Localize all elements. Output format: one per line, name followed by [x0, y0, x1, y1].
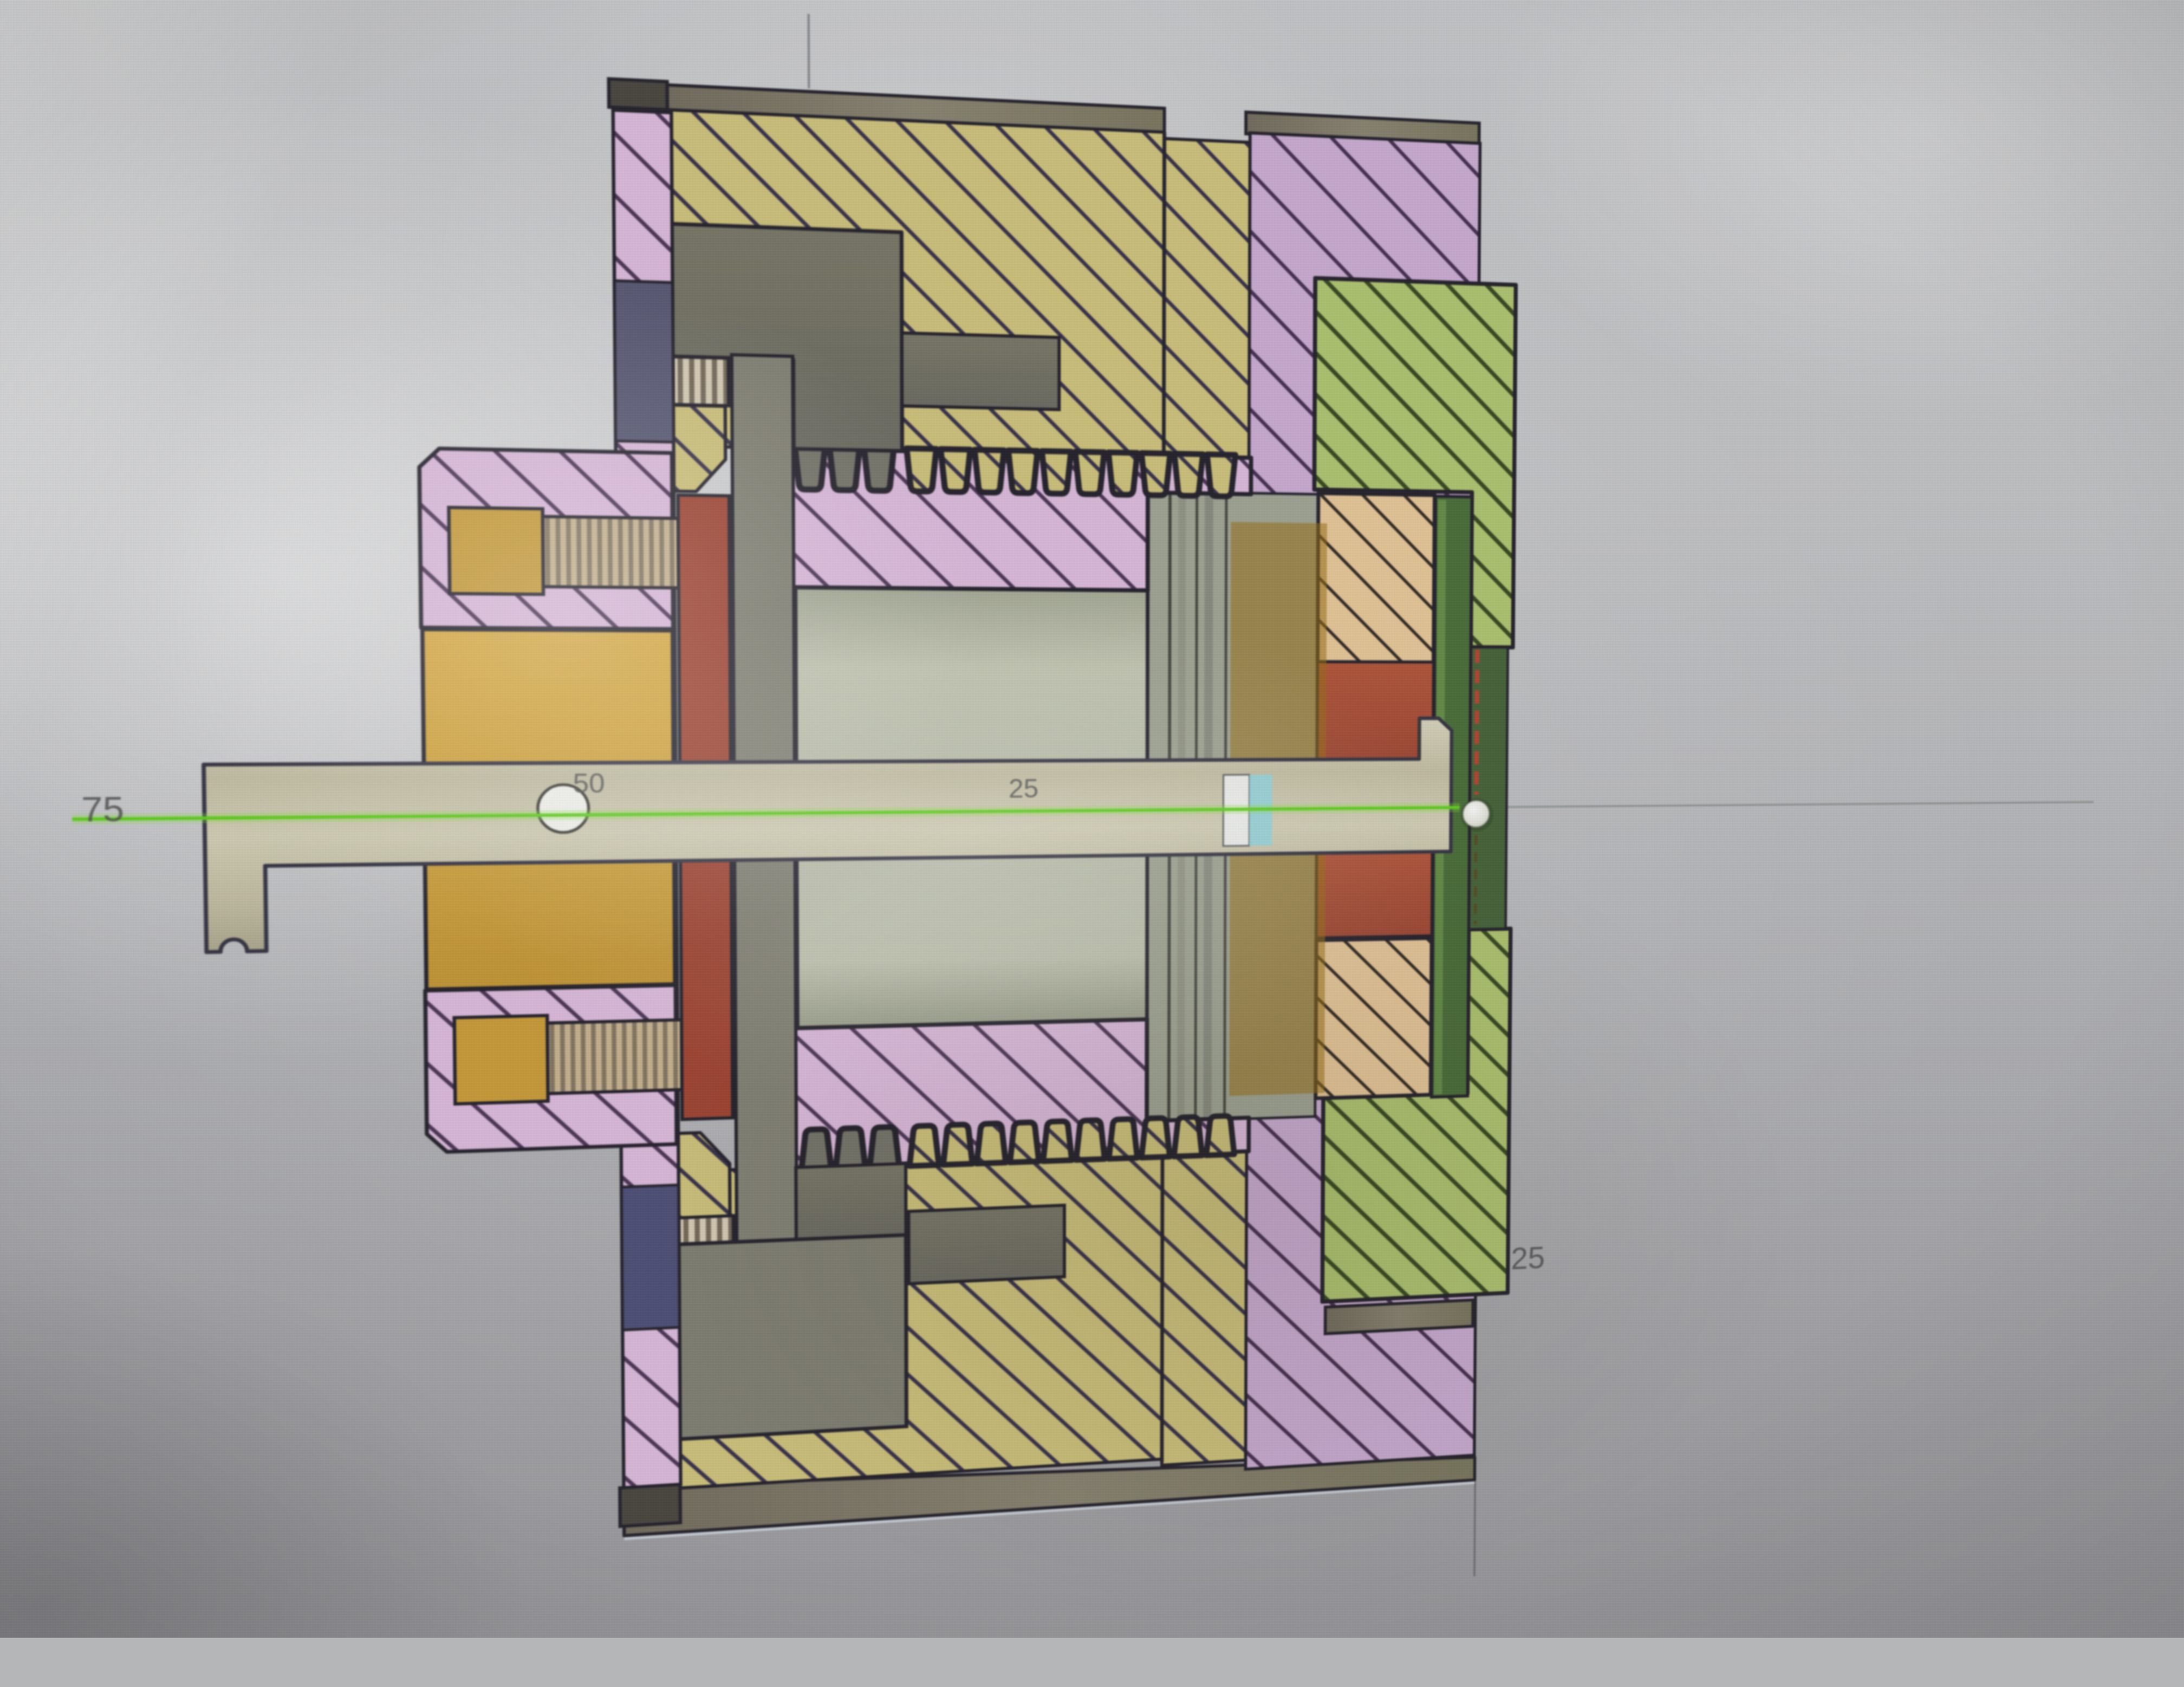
svg-text:25: 25: [1009, 774, 1038, 804]
svg-text:50: 50: [573, 768, 605, 799]
svg-text:75: 75: [81, 790, 125, 829]
svg-text:25: 25: [1511, 1240, 1545, 1276]
